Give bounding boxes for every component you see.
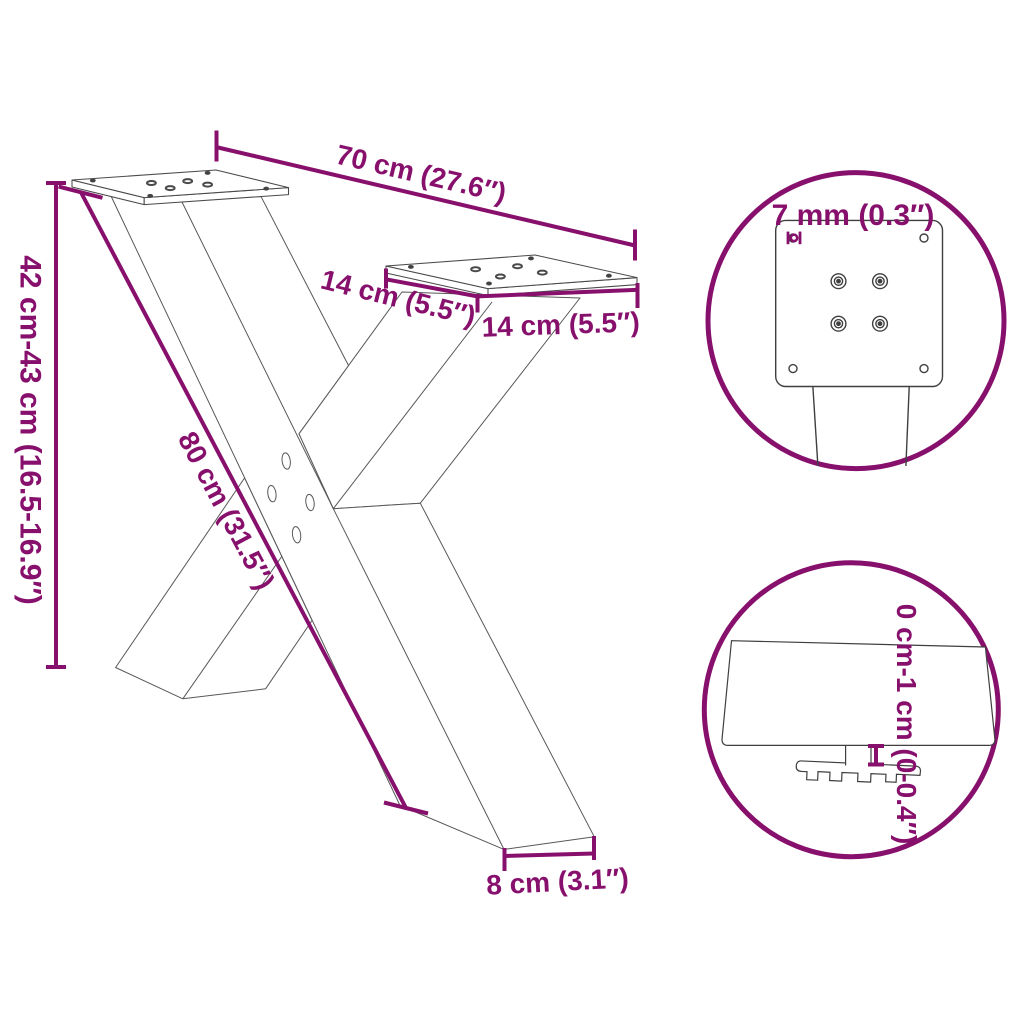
svg-text:14 cm (5.5″): 14 cm (5.5″) [481, 306, 640, 343]
svg-text:7 mm (0.3″): 7 mm (0.3″) [772, 199, 935, 232]
svg-text:0 cm-1 cm (0-0.4″): 0 cm-1 cm (0-0.4″) [891, 604, 922, 845]
svg-text:42 cm-43 cm (16.5-16.9″): 42 cm-43 cm (16.5-16.9″) [14, 255, 47, 605]
